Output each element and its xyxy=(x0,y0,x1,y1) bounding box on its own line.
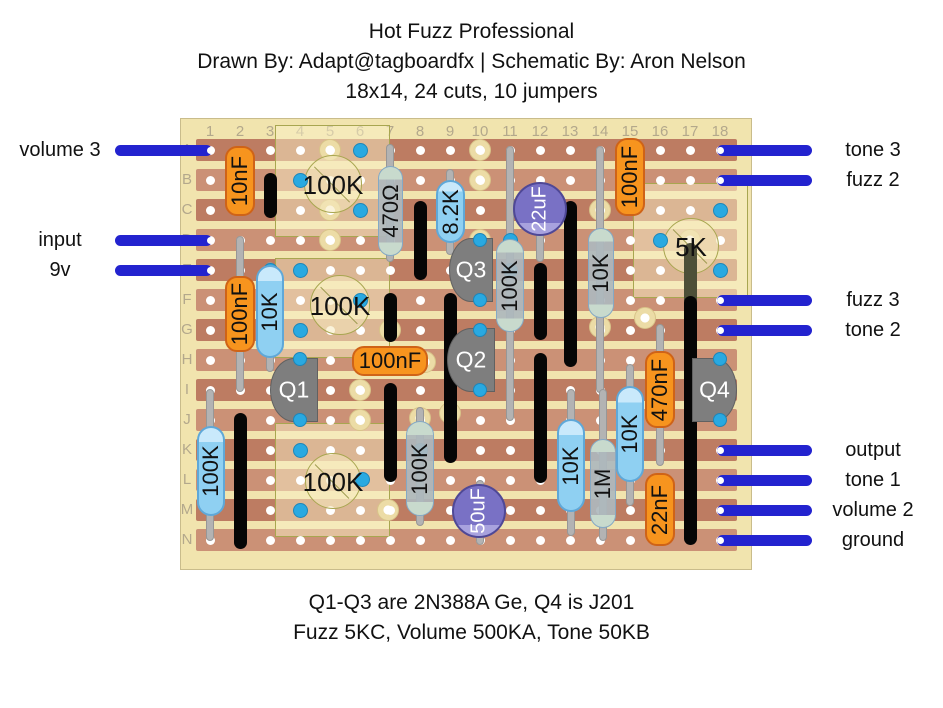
component-label: 100nF xyxy=(617,146,643,208)
footer-line-1: Q1-Q3 are 2N388A Ge, Q4 is J201 xyxy=(0,588,943,618)
row-label-G: G xyxy=(179,321,195,338)
wire-tone-3 xyxy=(717,145,812,156)
board-hole xyxy=(416,536,425,545)
component-label: 100nF xyxy=(359,348,421,374)
row-label-C: C xyxy=(179,201,195,218)
track-cut xyxy=(353,143,368,158)
jumper-link xyxy=(384,293,397,342)
capacitor-100nF: 100nF xyxy=(352,346,428,376)
wire-end-hole xyxy=(717,477,724,484)
pin-label-volume-3: volume 3 xyxy=(8,137,112,163)
resistor-100K: 100K xyxy=(406,421,434,516)
resistor-10K: 10K xyxy=(256,265,284,358)
transistor-pin-dot xyxy=(473,383,487,397)
wire-fuzz-3 xyxy=(717,295,812,306)
board-hole xyxy=(326,356,335,365)
track-cut xyxy=(293,443,308,458)
jumper-link xyxy=(534,263,547,340)
row-label-M: M xyxy=(179,501,195,518)
board-hole xyxy=(656,266,665,275)
jumper-link xyxy=(534,353,547,483)
capacitor-50uF: 50uF xyxy=(452,484,506,538)
wire-end-hole xyxy=(717,177,724,184)
board-hole xyxy=(446,536,455,545)
col-label-1: 1 xyxy=(200,123,220,140)
transistor-pin-dot xyxy=(473,233,487,247)
board-hole xyxy=(506,506,515,515)
board-hole xyxy=(686,176,695,185)
board-hole xyxy=(356,536,365,545)
board-hole xyxy=(416,296,425,305)
board-hole xyxy=(476,206,485,215)
footer-line-2: Fuzz 5KC, Volume 500KA, Tone 50KB xyxy=(0,618,943,648)
board-hole xyxy=(326,416,335,425)
component-label: 10K xyxy=(617,414,643,453)
component-label: 100K xyxy=(198,445,224,496)
board-hole xyxy=(416,146,425,155)
wire-volume-3 xyxy=(115,145,212,156)
wire-volume-2 xyxy=(717,505,812,516)
board-hole xyxy=(266,476,275,485)
col-label-16: 16 xyxy=(650,123,670,140)
wire-ground xyxy=(717,535,812,546)
transistor-pin-dot xyxy=(293,413,307,427)
board-hole xyxy=(656,176,665,185)
board-hole xyxy=(356,386,365,395)
component-label: 22uF xyxy=(529,186,552,232)
pot-value-label: 5K xyxy=(646,232,736,263)
board-hole xyxy=(356,266,365,275)
board-hole xyxy=(326,386,335,395)
col-label-14: 14 xyxy=(590,123,610,140)
row-label-L: L xyxy=(179,471,195,488)
component-label: 100K xyxy=(497,260,523,311)
pin-label-output: output xyxy=(818,437,928,463)
transistor-q2: Q2 xyxy=(447,328,495,392)
transistor-q1: Q1 xyxy=(270,358,318,422)
offboard-pad xyxy=(634,307,656,329)
resistor-10K: 10K xyxy=(616,386,644,482)
board-hole xyxy=(476,146,485,155)
board-hole xyxy=(206,356,215,365)
col-label-9: 9 xyxy=(440,123,460,140)
col-label-11: 11 xyxy=(500,123,520,140)
row-label-J: J xyxy=(179,411,195,428)
board-hole xyxy=(506,446,515,455)
row-label-F: F xyxy=(179,291,195,308)
board-hole xyxy=(206,296,215,305)
board-hole xyxy=(476,446,485,455)
row-label-H: H xyxy=(179,351,195,368)
board-hole xyxy=(356,506,365,515)
component-label: 50uF xyxy=(468,488,491,534)
wire-input xyxy=(115,235,212,246)
board-hole xyxy=(566,146,575,155)
board-hole xyxy=(296,536,305,545)
transistor-pin-dot xyxy=(713,413,727,427)
pin-label-tone-3: tone 3 xyxy=(818,137,928,163)
board-hole xyxy=(326,536,335,545)
track-cut xyxy=(293,263,308,278)
component-label: Q4 xyxy=(699,377,730,404)
board-hole xyxy=(296,236,305,245)
component-label: Q3 xyxy=(456,257,487,284)
board-hole xyxy=(356,236,365,245)
resistor-100K: 100K xyxy=(496,239,524,332)
board-hole xyxy=(686,206,695,215)
capacitor-10nF: 10nF xyxy=(225,146,255,216)
resistor-8.2K: 8.2K xyxy=(436,180,465,243)
component-label: 100nF xyxy=(227,283,253,345)
board-hole xyxy=(536,536,545,545)
col-label-12: 12 xyxy=(530,123,550,140)
wire-output xyxy=(717,445,812,456)
resistor-10K: 10K xyxy=(588,228,614,318)
pin-label-tone-1: tone 1 xyxy=(818,467,928,493)
board-hole xyxy=(356,446,365,455)
col-label-17: 17 xyxy=(680,123,700,140)
board-hole xyxy=(476,176,485,185)
transistor-q3: Q3 xyxy=(449,238,493,302)
wire-fuzz-2 xyxy=(717,175,812,186)
pin-label-fuzz-2: fuzz 2 xyxy=(818,167,928,193)
wire-end-hole xyxy=(207,147,214,154)
pot-value-label: 100K xyxy=(288,170,378,201)
board-hole xyxy=(686,146,695,155)
transistor-pin-dot xyxy=(293,352,307,366)
board-hole xyxy=(206,326,215,335)
board-hole xyxy=(386,506,395,515)
board-hole xyxy=(266,146,275,155)
board-hole xyxy=(656,146,665,155)
jumper-link xyxy=(264,173,277,218)
board-hole xyxy=(266,506,275,515)
row-label-K: K xyxy=(179,441,195,458)
board-hole xyxy=(446,476,455,485)
component-label: 10K xyxy=(588,253,614,292)
board-hole xyxy=(386,266,395,275)
transistor-q4: Q4 xyxy=(692,358,737,422)
component-label: 100K xyxy=(407,443,433,494)
board-hole xyxy=(536,146,545,155)
component-label: 470Ω xyxy=(378,184,404,237)
resistor-1M: 1M xyxy=(590,439,616,528)
component-label: 1M xyxy=(590,468,616,499)
board-hole xyxy=(326,146,335,155)
component-label: Q2 xyxy=(456,347,487,374)
board-hole xyxy=(296,206,305,215)
wire-end-hole xyxy=(717,507,724,514)
board-hole xyxy=(386,536,395,545)
pin-label-fuzz-3: fuzz 3 xyxy=(818,287,928,313)
col-label-2: 2 xyxy=(230,123,250,140)
col-label-10: 10 xyxy=(470,123,490,140)
footer-block: Q1-Q3 are 2N388A Ge, Q4 is J201 Fuzz 5KC… xyxy=(0,588,943,648)
capacitor-100nF: 100nF xyxy=(615,138,645,216)
jumper-link xyxy=(384,383,397,482)
layout-diagram: Hot Fuzz Professional Drawn By: Adapt@ta… xyxy=(0,0,943,708)
component-label: 10K xyxy=(257,292,283,331)
capacitor-22uF: 22uF xyxy=(513,182,567,236)
board-hole xyxy=(206,176,215,185)
board-hole xyxy=(536,506,545,515)
col-label-18: 18 xyxy=(710,123,730,140)
board-hole xyxy=(416,326,425,335)
resistor-100K: 100K xyxy=(197,426,225,516)
wire-end-hole xyxy=(207,237,214,244)
wire-end-hole xyxy=(717,537,724,544)
board-hole xyxy=(446,146,455,155)
board-hole xyxy=(626,296,635,305)
pin-label-tone-2: tone 2 xyxy=(818,317,928,343)
board-hole xyxy=(326,236,335,245)
component-label: 8.2K xyxy=(438,189,464,234)
board-hole xyxy=(266,536,275,545)
board-hole xyxy=(206,206,215,215)
board-hole xyxy=(626,536,635,545)
wire-tone-2 xyxy=(717,325,812,336)
board-hole xyxy=(506,476,515,485)
board-hole xyxy=(626,506,635,515)
board-hole xyxy=(476,416,485,425)
row-label-I: I xyxy=(179,381,195,398)
wire-end-hole xyxy=(717,327,724,334)
wire-end-hole xyxy=(717,147,724,154)
wire-end-hole xyxy=(717,447,724,454)
component-label: 10K xyxy=(558,446,584,485)
wire-tone-1 xyxy=(717,475,812,486)
board-hole xyxy=(566,176,575,185)
track-cut xyxy=(713,263,728,278)
component-label: Q1 xyxy=(279,377,310,404)
wire-end-hole xyxy=(207,267,214,274)
board-hole xyxy=(266,446,275,455)
board-hole xyxy=(296,146,305,155)
transistor-pin-dot xyxy=(473,293,487,307)
track-cut xyxy=(353,203,368,218)
track-cut xyxy=(293,503,308,518)
transistor-pin-dot xyxy=(473,323,487,337)
transistor-pin-dot xyxy=(713,352,727,366)
capacitor-22nF: 22nF xyxy=(645,473,675,546)
component-label: 10nF xyxy=(227,156,253,206)
pin-label-volume-2: volume 2 xyxy=(818,497,928,523)
jumper-link xyxy=(564,201,577,367)
col-label-13: 13 xyxy=(560,123,580,140)
component-label: 22nF xyxy=(647,484,673,534)
row-label-N: N xyxy=(179,531,195,548)
board-hole xyxy=(326,266,335,275)
row-label-B: B xyxy=(179,171,195,188)
pin-label-input: input xyxy=(8,227,112,253)
board-hole xyxy=(266,416,275,425)
board-hole xyxy=(626,266,635,275)
board-hole xyxy=(416,176,425,185)
jumper-link xyxy=(234,413,247,549)
pin-label-9v: 9v xyxy=(8,257,112,283)
board-hole xyxy=(626,236,635,245)
resistor-10K: 10K xyxy=(557,419,585,512)
track-cut xyxy=(713,203,728,218)
resistor-470: 470Ω xyxy=(378,166,403,256)
board-hole xyxy=(656,296,665,305)
track-cut xyxy=(293,323,308,338)
board-hole xyxy=(656,206,665,215)
board-hole xyxy=(266,236,275,245)
wire-end-hole xyxy=(717,297,724,304)
board-hole xyxy=(356,416,365,425)
capacitor-470nF: 470nF xyxy=(645,351,675,428)
board-hole xyxy=(506,536,515,545)
pin-label-ground: ground xyxy=(818,527,928,553)
pot-value-label: 100K xyxy=(288,467,378,498)
jumper-link xyxy=(414,201,427,280)
pot-value-label: 100K xyxy=(295,291,385,322)
board-hole xyxy=(566,536,575,545)
board-hole xyxy=(626,326,635,335)
wire-9v xyxy=(115,265,212,276)
board-hole xyxy=(416,386,425,395)
capacitor-100nF: 100nF xyxy=(225,276,255,352)
col-label-8: 8 xyxy=(410,123,430,140)
component-label: 470nF xyxy=(647,358,673,420)
